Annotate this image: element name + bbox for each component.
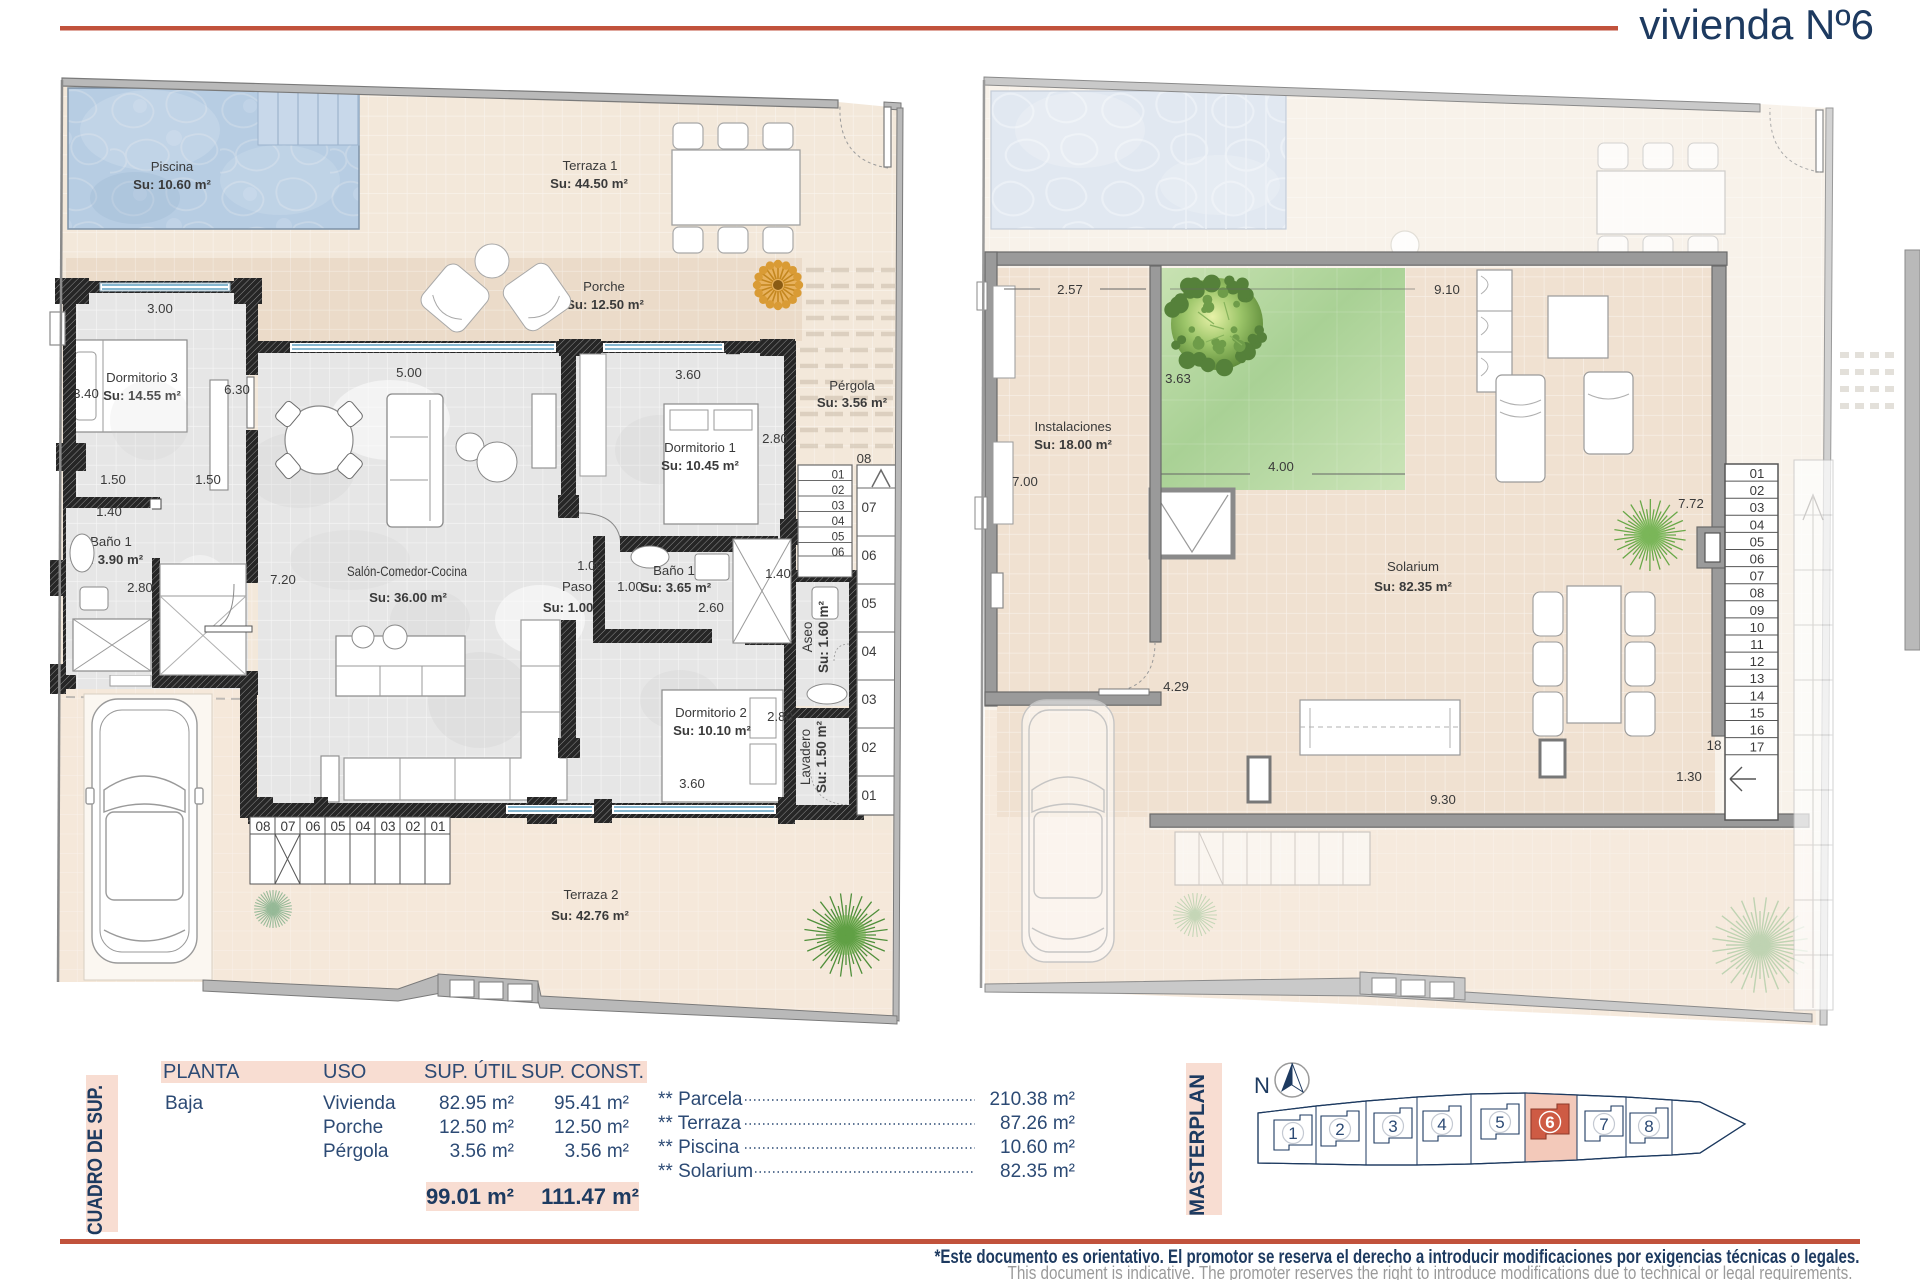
svg-text:CUADRO DE SUP.: CUADRO DE SUP. — [84, 1085, 107, 1235]
svg-text:2.80: 2.80 — [767, 709, 793, 724]
svg-text:03: 03 — [380, 819, 395, 834]
svg-text:12.50 m²: 12.50 m² — [439, 1117, 514, 1138]
svg-text:08: 08 — [1750, 586, 1765, 601]
svg-text:6: 6 — [1545, 1113, 1554, 1132]
svg-text:This document is indicative. T: This document is indicative. The promote… — [1008, 1263, 1853, 1280]
svg-text:14: 14 — [1750, 688, 1765, 703]
svg-text:06: 06 — [861, 548, 876, 563]
svg-text:Vivienda: Vivienda — [323, 1093, 396, 1114]
svg-text:07: 07 — [861, 500, 876, 515]
svg-text:Su: 42.76 m²: Su: 42.76 m² — [551, 908, 629, 923]
svg-text:2.80: 2.80 — [127, 580, 153, 595]
svg-text:Dormitorio 2: Dormitorio 2 — [675, 705, 747, 720]
svg-text:10: 10 — [1750, 620, 1765, 635]
svg-text:04: 04 — [355, 819, 371, 834]
svg-text:** Parcela: ** Parcela — [658, 1089, 743, 1110]
svg-text:Pérgola: Pérgola — [829, 378, 875, 393]
svg-text:PLANTA: PLANTA — [163, 1061, 240, 1083]
svg-text:2: 2 — [1335, 1120, 1344, 1139]
svg-text:Instalaciones: Instalaciones — [1035, 419, 1112, 434]
svg-text:2.57: 2.57 — [1057, 282, 1083, 297]
svg-text:04: 04 — [861, 644, 877, 659]
svg-text:Su: 3.56 m²: Su: 3.56 m² — [817, 395, 888, 410]
svg-text:2.60: 2.60 — [698, 600, 724, 615]
svg-text:Baño 1: Baño 1 — [653, 563, 695, 578]
svg-text:08: 08 — [255, 819, 270, 834]
svg-text:SUP. CONST.: SUP. CONST. — [521, 1061, 644, 1083]
svg-text:01: 01 — [832, 470, 845, 482]
svg-text:16: 16 — [1750, 723, 1765, 738]
svg-text:Su: 18.00 m²: Su: 18.00 m² — [1034, 437, 1112, 452]
svg-text:3.00: 3.00 — [147, 301, 173, 316]
svg-text:1.30: 1.30 — [1676, 769, 1702, 784]
svg-text:210.38 m²: 210.38 m² — [989, 1089, 1075, 1110]
svg-text:Porche: Porche — [583, 279, 625, 294]
svg-text:Salón-Comedor-Cocina: Salón-Comedor-Cocina — [347, 563, 467, 579]
svg-text:Su: 1.60 m²: Su: 1.60 m² — [816, 600, 831, 673]
svg-text:1.00: 1.00 — [577, 558, 603, 573]
svg-text:1.50: 1.50 — [100, 472, 126, 487]
svg-text:MASTERPLAN: MASTERPLAN — [1186, 1074, 1209, 1216]
svg-text:08: 08 — [857, 451, 872, 466]
svg-text:12.50 m²: 12.50 m² — [554, 1117, 629, 1138]
svg-text:N: N — [1254, 1073, 1270, 1098]
svg-text:03: 03 — [1750, 500, 1765, 515]
svg-text:Paso: Paso — [562, 579, 592, 594]
svg-text:1.00: 1.00 — [617, 579, 643, 594]
svg-text:2.80: 2.80 — [762, 431, 788, 446]
svg-text:3.40: 3.40 — [73, 386, 99, 401]
svg-text:** Terraza: ** Terraza — [658, 1113, 742, 1134]
svg-text:Su: 10.45 m²: Su: 10.45 m² — [661, 458, 739, 473]
svg-text:05: 05 — [330, 819, 345, 834]
svg-text:01: 01 — [1750, 466, 1765, 481]
svg-text:82.35 m²: 82.35 m² — [1000, 1161, 1075, 1182]
svg-text:06: 06 — [305, 819, 320, 834]
svg-text:Su: 3.65 m²: Su: 3.65 m² — [641, 580, 712, 595]
svg-text:7.72: 7.72 — [1678, 496, 1704, 511]
svg-text:05: 05 — [861, 596, 876, 611]
svg-text:82.95 m²: 82.95 m² — [439, 1093, 514, 1114]
svg-text:02: 02 — [405, 819, 420, 834]
svg-text:** Solarium: ** Solarium — [658, 1161, 753, 1182]
svg-text:09: 09 — [1750, 603, 1765, 618]
svg-text:1.40: 1.40 — [765, 566, 791, 581]
svg-text:10.60 m²: 10.60 m² — [1000, 1137, 1075, 1158]
svg-text:1.40: 1.40 — [96, 504, 122, 519]
svg-text:95.41 m²: 95.41 m² — [554, 1093, 629, 1114]
svg-text:Su: 44.50 m²: Su: 44.50 m² — [550, 176, 628, 191]
svg-text:3.63: 3.63 — [1165, 371, 1191, 386]
svg-text:02: 02 — [832, 485, 845, 497]
svg-text:1: 1 — [1288, 1124, 1297, 1143]
svg-text:USO: USO — [323, 1061, 366, 1083]
svg-text:13: 13 — [1750, 671, 1765, 686]
svg-text:** Piscina: ** Piscina — [658, 1137, 740, 1158]
svg-text:03: 03 — [832, 501, 845, 513]
svg-text:7.20: 7.20 — [270, 572, 296, 587]
svg-text:87.26 m²: 87.26 m² — [1000, 1113, 1075, 1134]
svg-text:5.00: 5.00 — [396, 365, 422, 380]
svg-text:Su: 12.50 m²: Su: 12.50 m² — [566, 297, 644, 312]
svg-text:3: 3 — [1388, 1117, 1397, 1136]
svg-text:3.60: 3.60 — [679, 776, 705, 791]
svg-text:07: 07 — [280, 819, 295, 834]
svg-text:4: 4 — [1437, 1115, 1446, 1134]
svg-text:01: 01 — [861, 788, 876, 803]
svg-text:07: 07 — [1750, 569, 1765, 584]
svg-text:Baja: Baja — [165, 1093, 203, 1114]
svg-text:8: 8 — [1644, 1117, 1653, 1136]
svg-text:05: 05 — [832, 532, 845, 544]
svg-text:12: 12 — [1750, 654, 1765, 669]
svg-text:SUP. ÚTIL: SUP. ÚTIL — [424, 1060, 517, 1083]
svg-text:99.01 m²: 99.01 m² — [426, 1184, 514, 1209]
svg-text:04: 04 — [832, 516, 845, 528]
svg-text:17: 17 — [1750, 740, 1765, 755]
svg-text:Terraza 1: Terraza 1 — [563, 158, 618, 173]
svg-text:Su: 82.35 m²: Su: 82.35 m² — [1374, 579, 1452, 594]
svg-text:7: 7 — [1599, 1115, 1608, 1134]
svg-text:Su: 10.10 m²: Su: 10.10 m² — [673, 723, 751, 738]
svg-text:Aseo: Aseo — [800, 622, 815, 653]
svg-text:Baño 1: Baño 1 — [90, 534, 132, 549]
svg-text:Piscina: Piscina — [151, 159, 194, 174]
svg-text:4.29: 4.29 — [1163, 679, 1189, 694]
svg-text:01: 01 — [430, 819, 445, 834]
svg-text:vivienda Nº6: vivienda Nº6 — [1639, 1, 1874, 48]
svg-text:Terraza 2: Terraza 2 — [564, 887, 619, 902]
svg-text:Su: 1.50 m²: Su: 1.50 m² — [814, 720, 829, 793]
svg-text:3.60: 3.60 — [675, 367, 701, 382]
svg-text:Solarium: Solarium — [1387, 559, 1439, 574]
svg-text:Su: 36.00 m²: Su: 36.00 m² — [369, 590, 447, 605]
svg-text:7.00: 7.00 — [1012, 474, 1038, 489]
svg-text:9.30: 9.30 — [1430, 792, 1456, 807]
svg-text:Porche: Porche — [323, 1117, 383, 1138]
svg-text:Pérgola: Pérgola — [323, 1141, 389, 1162]
svg-text:04: 04 — [1750, 517, 1765, 532]
svg-text:9.10: 9.10 — [1434, 282, 1460, 297]
svg-text:3.56 m²: 3.56 m² — [565, 1141, 629, 1162]
svg-text:Dormitorio 1: Dormitorio 1 — [664, 440, 736, 455]
svg-text:11: 11 — [1750, 637, 1764, 652]
svg-text:111.47 m²: 111.47 m² — [541, 1184, 639, 1209]
svg-text:18: 18 — [1706, 738, 1721, 753]
svg-text:Su: 10.60 m²: Su: 10.60 m² — [133, 177, 211, 192]
svg-text:06: 06 — [1750, 552, 1765, 567]
svg-text:15: 15 — [1750, 705, 1765, 720]
svg-text:05: 05 — [1750, 534, 1765, 549]
svg-text:03: 03 — [861, 692, 876, 707]
svg-text:4.00: 4.00 — [1268, 459, 1294, 474]
svg-text:5: 5 — [1495, 1113, 1504, 1132]
svg-text:6.30: 6.30 — [224, 382, 250, 397]
svg-text:3.56 m²: 3.56 m² — [450, 1141, 514, 1162]
svg-text:02: 02 — [861, 740, 876, 755]
svg-text:02: 02 — [1750, 483, 1765, 498]
svg-text:1.50: 1.50 — [195, 472, 221, 487]
